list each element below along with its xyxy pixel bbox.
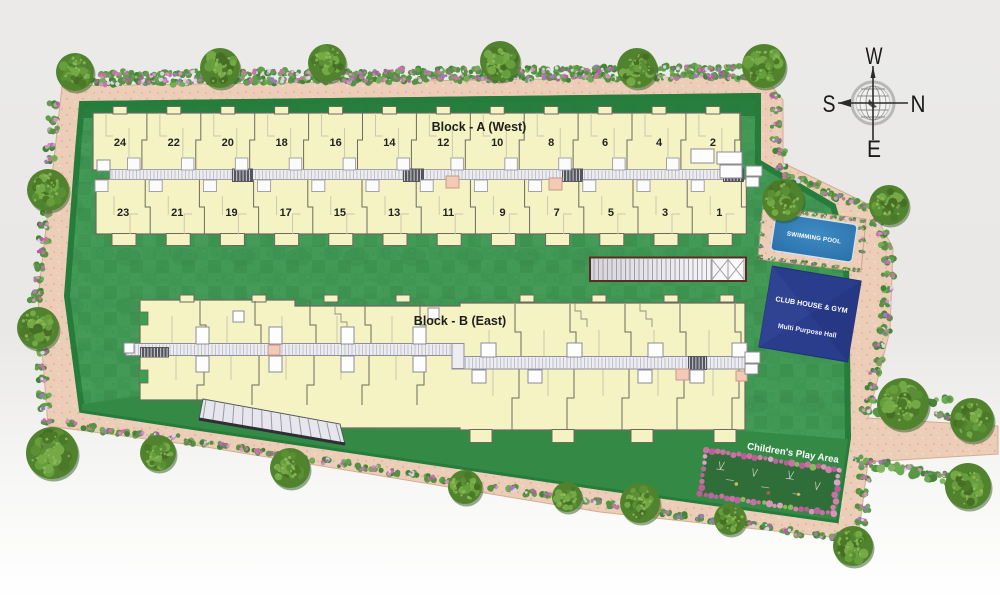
- svg-text:13: 13: [388, 207, 400, 219]
- svg-text:22: 22: [168, 137, 180, 149]
- svg-text:20: 20: [222, 137, 234, 149]
- svg-text:9: 9: [499, 207, 505, 219]
- svg-text:14: 14: [383, 137, 396, 149]
- svg-text:11: 11: [442, 207, 454, 219]
- svg-text:S: S: [823, 91, 836, 118]
- svg-text:2: 2: [710, 137, 716, 149]
- svg-text:6: 6: [602, 137, 608, 149]
- svg-text:5: 5: [608, 207, 614, 219]
- svg-text:4: 4: [656, 137, 663, 149]
- svg-text:8: 8: [548, 137, 554, 149]
- svg-text:19: 19: [225, 207, 237, 219]
- svg-text:Block - B (East): Block - B (East): [414, 314, 506, 328]
- svg-text:12: 12: [437, 137, 449, 149]
- svg-text:24: 24: [114, 137, 127, 149]
- svg-text:E: E: [867, 136, 881, 163]
- svg-text:23: 23: [117, 207, 129, 219]
- svg-text:7: 7: [554, 207, 560, 219]
- svg-text:W: W: [866, 43, 883, 70]
- svg-text:17: 17: [280, 207, 292, 219]
- svg-text:16: 16: [329, 137, 341, 149]
- svg-text:N: N: [911, 91, 926, 118]
- svg-text:21: 21: [171, 207, 183, 219]
- svg-text:18: 18: [275, 137, 287, 149]
- svg-text:1: 1: [716, 207, 722, 219]
- svg-text:3: 3: [662, 207, 668, 219]
- svg-text:10: 10: [491, 137, 503, 149]
- svg-text:Block - A (West): Block - A (West): [432, 120, 527, 134]
- svg-text:15: 15: [334, 207, 346, 219]
